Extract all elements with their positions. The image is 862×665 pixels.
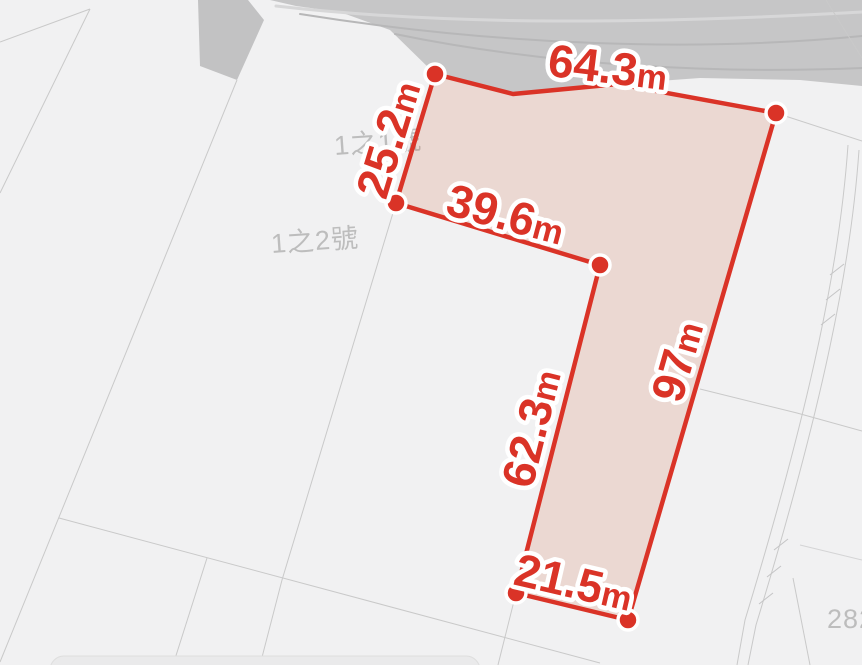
vertex-dot-top-left[interactable] <box>425 64 445 84</box>
vertex-dot-middle[interactable] <box>590 255 610 275</box>
map-canvas[interactable]: 1之1號 1之2號 282 64.3m 25.2m 39.6m 97m 62.3… <box>0 0 862 665</box>
measurement-overlay-layer: 64.3m 25.2m 39.6m 97m 62.3m 21.5m <box>0 0 862 665</box>
vertex-dot-top-right[interactable] <box>766 103 786 123</box>
measured-parcel-polygon[interactable] <box>396 74 776 620</box>
